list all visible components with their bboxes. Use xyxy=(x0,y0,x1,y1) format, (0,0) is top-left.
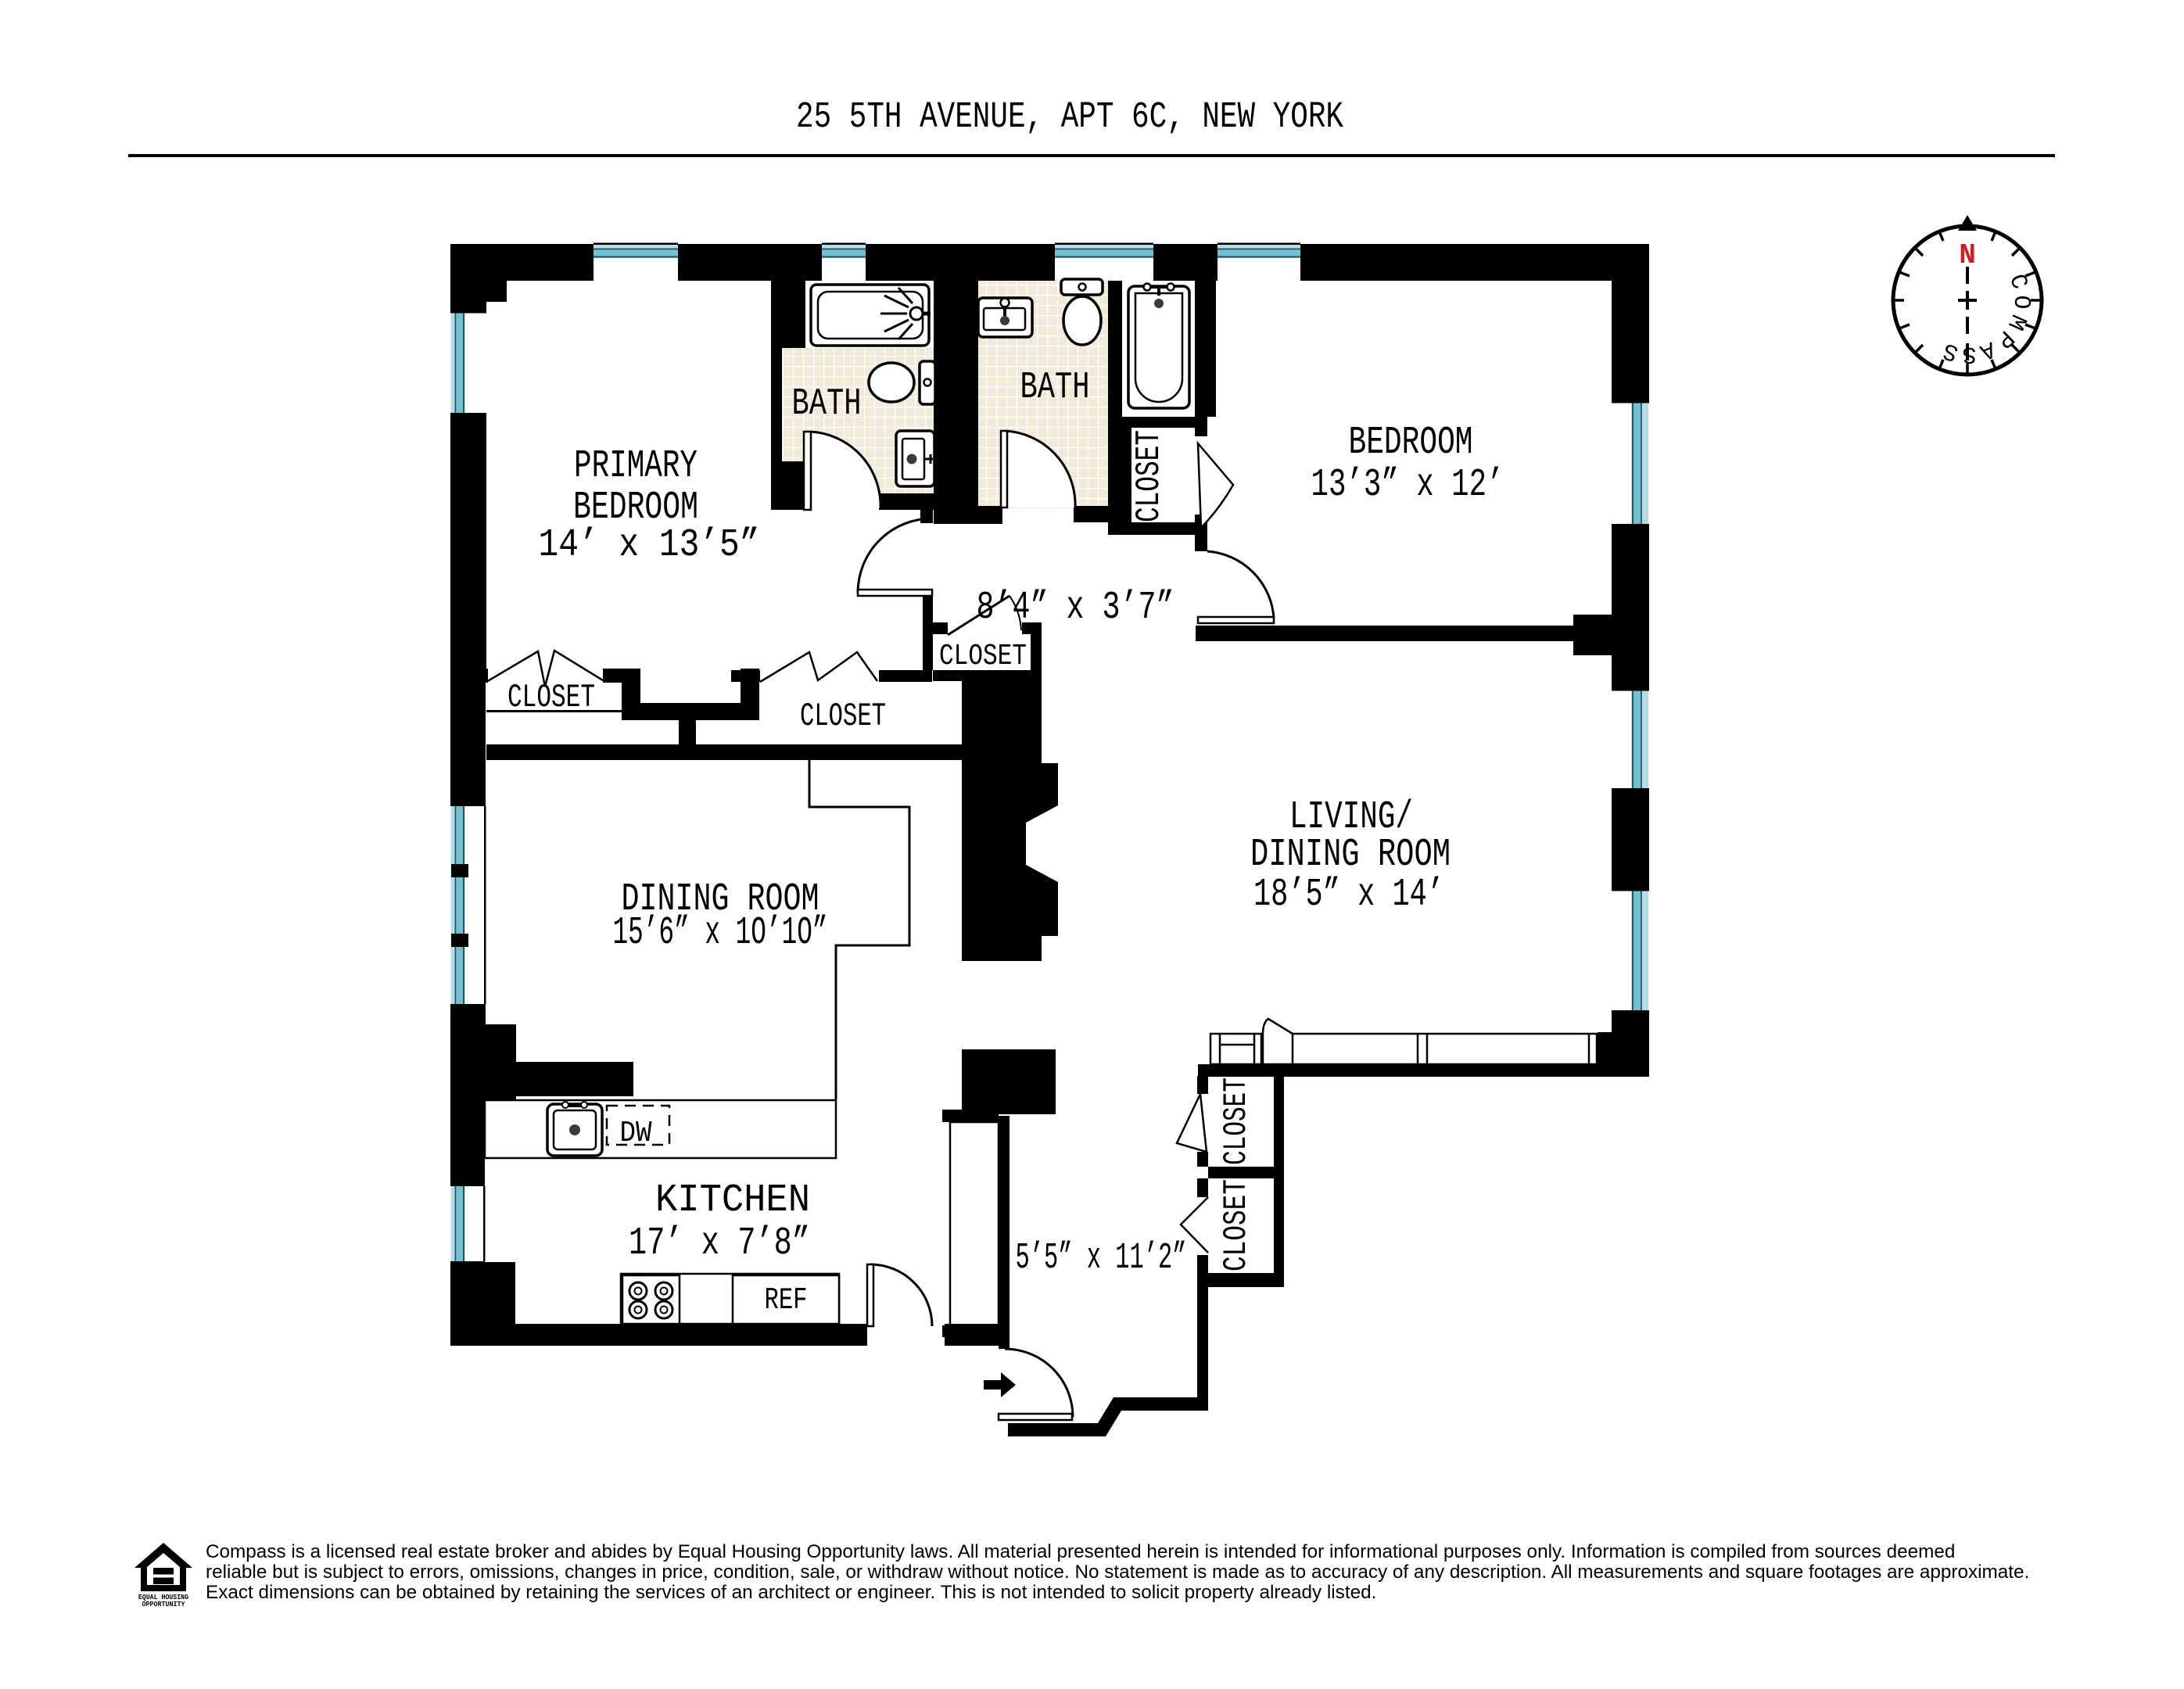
svg-text:CLOSET: CLOSET xyxy=(1130,430,1169,522)
svg-text:CLOSET: CLOSET xyxy=(939,640,1027,673)
svg-text:BEDROOM: BEDROOM xyxy=(1349,421,1473,465)
svg-text:CLOSET: CLOSET xyxy=(800,697,886,735)
svg-text:BATH: BATH xyxy=(1020,367,1090,409)
svg-text:15’6” x 1O’1O”: 15’6” x 1O’1O” xyxy=(613,911,828,956)
svg-text:Compass is a licensed real est: Compass is a licensed real estate broker… xyxy=(206,1541,1955,1562)
svg-text:Exact dimensions can be obtain: Exact dimensions can be obtained by reta… xyxy=(206,1582,1376,1603)
svg-text:8’4” x 3’7”: 8’4” x 3’7” xyxy=(977,586,1174,630)
svg-text:5’5” x 11’2”: 5’5” x 11’2” xyxy=(1016,1238,1187,1279)
svg-text:OPPORTUNITY: OPPORTUNITY xyxy=(142,1600,185,1608)
svg-text:BATH: BATH xyxy=(792,383,862,425)
svg-text:REF: REF xyxy=(765,1283,808,1318)
svg-text:KITCHEN: KITCHEN xyxy=(655,1178,810,1223)
svg-text:18’5” x 14’: 18’5” x 14’ xyxy=(1253,873,1444,917)
svg-text:DW: DW xyxy=(620,1117,652,1150)
svg-text:PRIMARY: PRIMARY xyxy=(574,444,698,489)
svg-text:14’ x 13’5”: 14’ x 13’5” xyxy=(539,523,760,568)
svg-text:CLOSET: CLOSET xyxy=(1218,1179,1255,1271)
svg-text:25 5TH AVENUE, APT 6C, NEW YOR: 25 5TH AVENUE, APT 6C, NEW YORK xyxy=(796,97,1344,138)
svg-text:CLOSET: CLOSET xyxy=(1218,1078,1255,1165)
svg-text:reliable but is subject to err: reliable but is subject to errors, omiss… xyxy=(206,1562,2029,1583)
svg-text:CLOSET: CLOSET xyxy=(507,679,595,716)
svg-text:O: O xyxy=(2007,295,2035,310)
svg-text:17’ x 7’8”: 17’ x 7’8” xyxy=(629,1221,810,1266)
svg-text:13’3” x 12’: 13’3” x 12’ xyxy=(1311,463,1504,507)
svg-text:DINING ROOM: DINING ROOM xyxy=(1250,833,1451,877)
svg-text:S: S xyxy=(1962,340,1977,368)
svg-text:N: N xyxy=(1959,239,1976,271)
